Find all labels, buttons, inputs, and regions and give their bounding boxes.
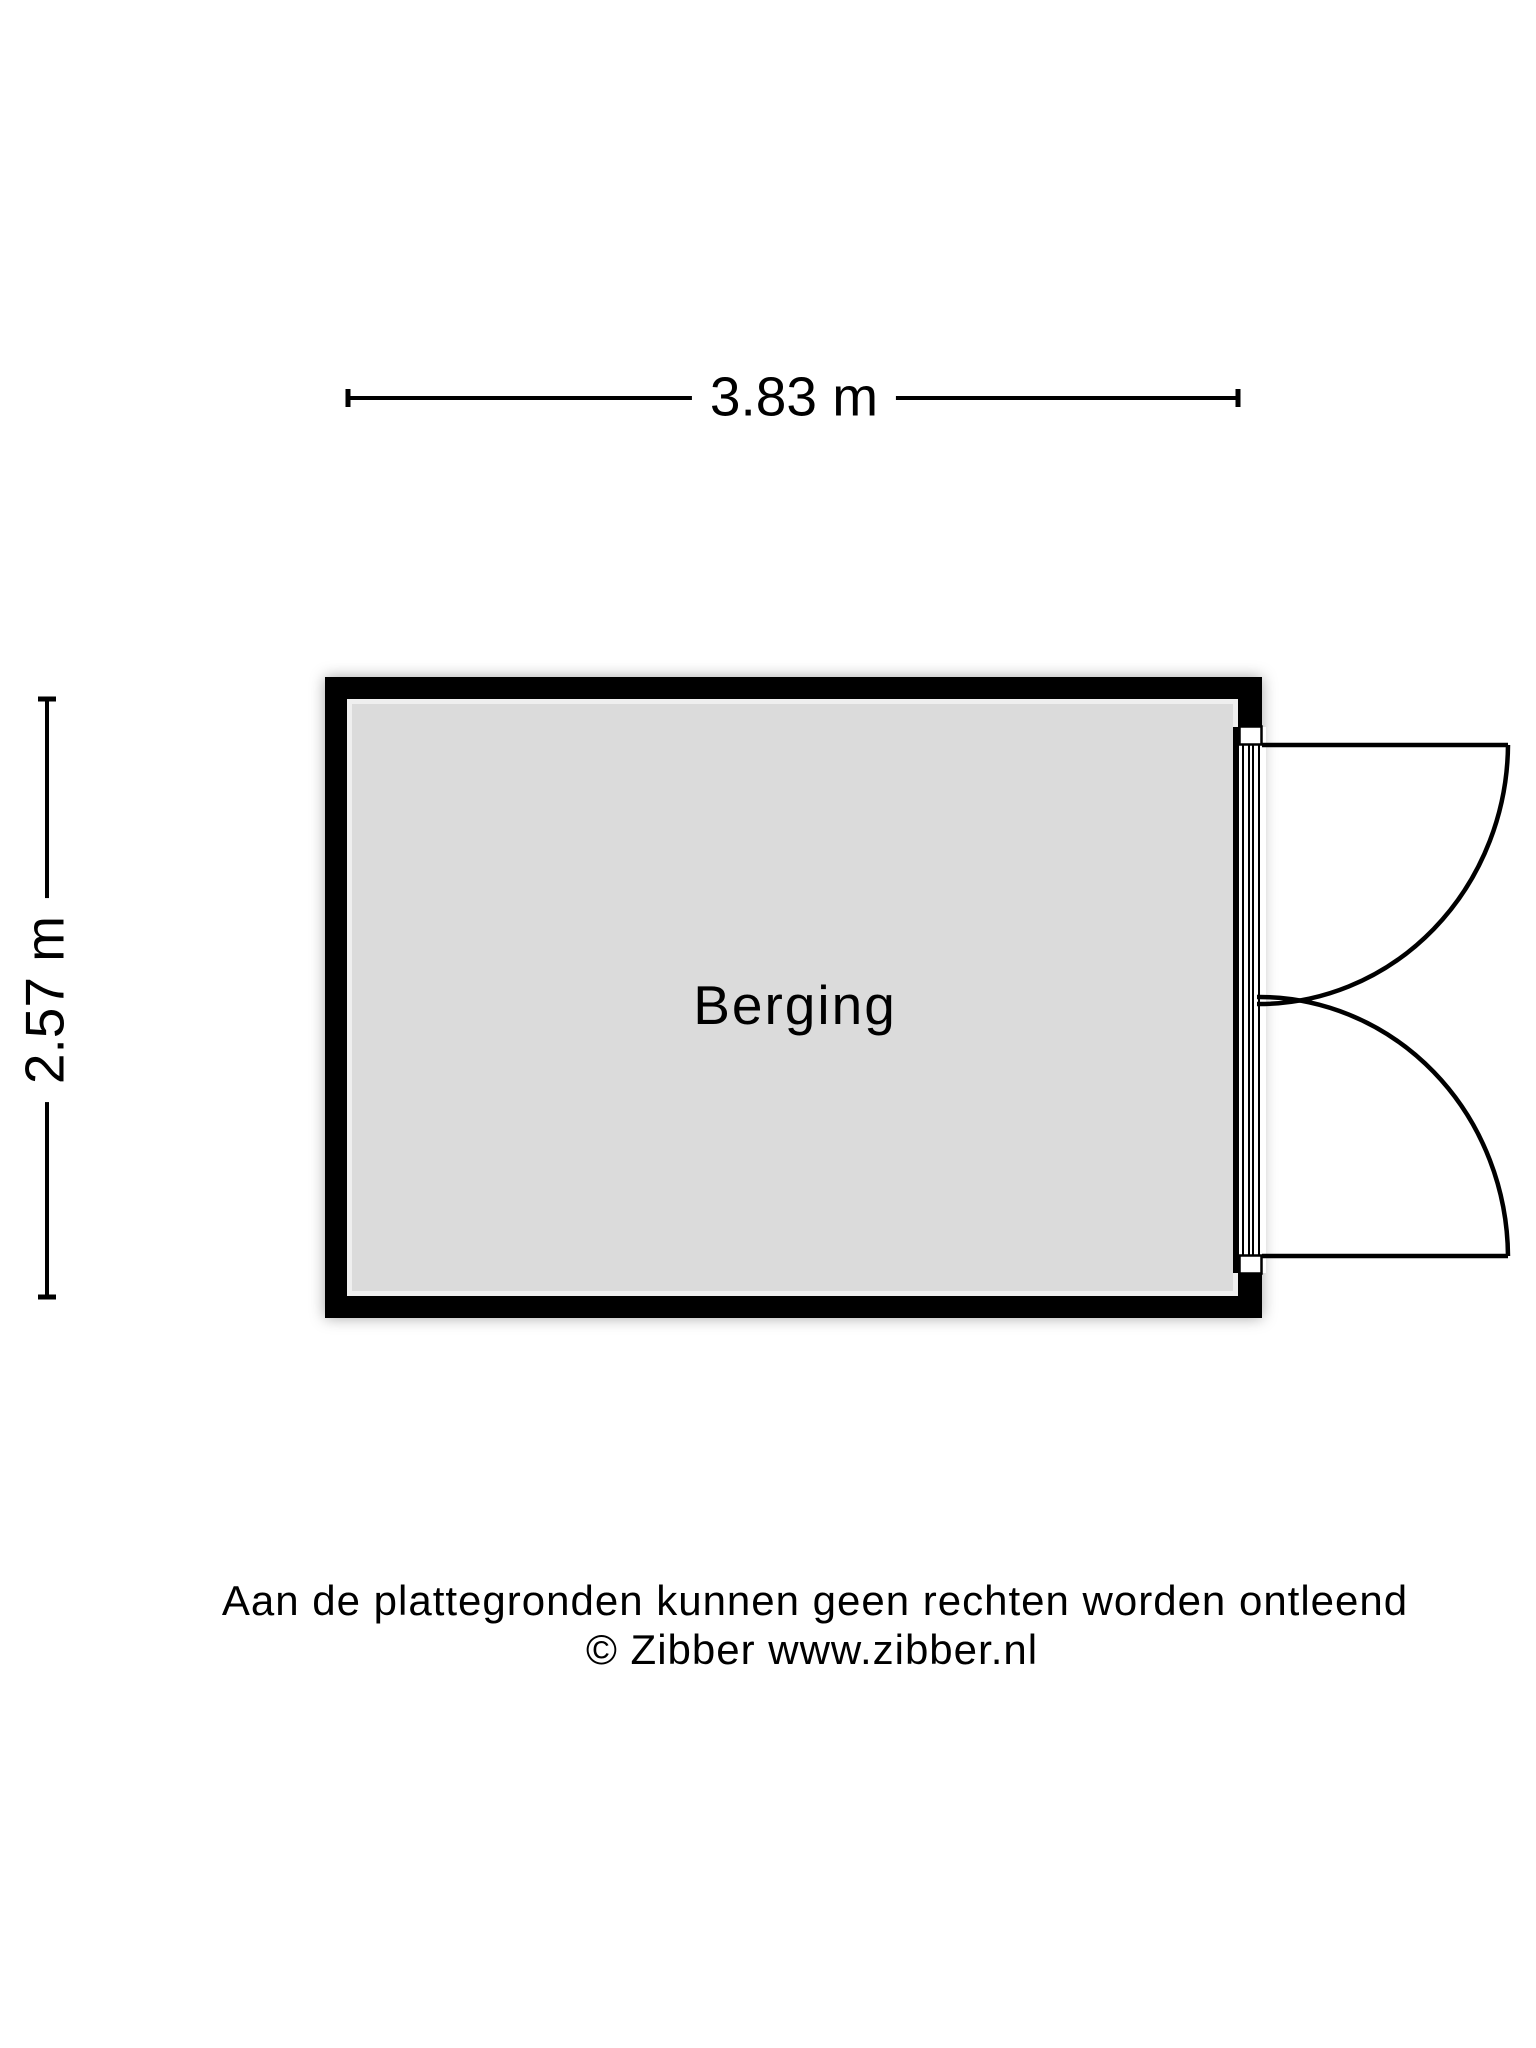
footer-disclaimer: Aan de plattegronden kunnen geen rechten…	[222, 1577, 1408, 1625]
dimension-label-height: 2.57 m	[14, 898, 77, 1102]
door-leaf-edge-right	[1253, 745, 1259, 1256]
floorplan-canvas: 3.83 m 2.57 m Berging Aan de plattegrond…	[0, 0, 1536, 2048]
door-leaf-edge-left	[1243, 745, 1249, 1256]
door-swing-arc-top	[1257, 745, 1508, 1004]
door-jamb-bottom	[1240, 1256, 1262, 1274]
footer-copyright: © Zibber www.zibber.nl	[586, 1626, 1038, 1674]
door-jamb-top	[1240, 727, 1262, 745]
room-label: Berging	[693, 973, 897, 1037]
door-swing-arc-bottom	[1257, 997, 1508, 1256]
door-threshold-line	[1233, 727, 1239, 1273]
dimension-label-width: 3.83 m	[692, 366, 896, 429]
